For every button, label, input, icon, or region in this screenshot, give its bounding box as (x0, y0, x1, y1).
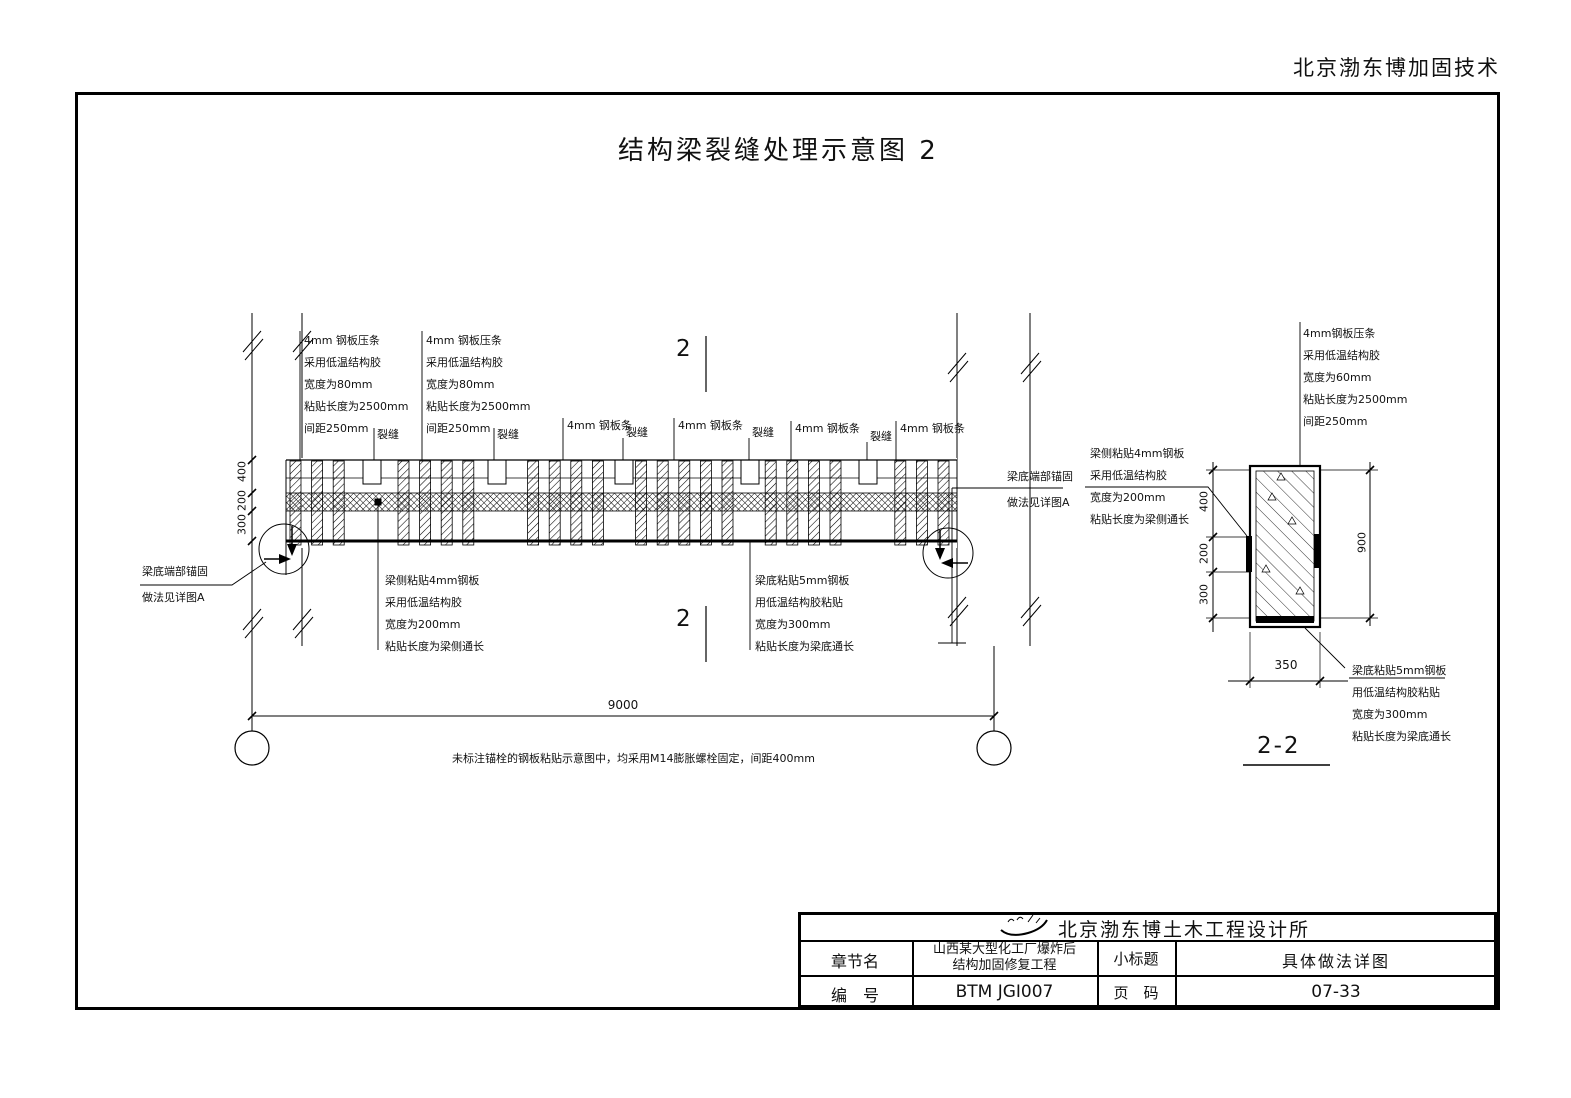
tb-number-value: BTM JGI007 (912, 982, 1097, 1002)
tb-subtitle-value: 具体做法详图 (1175, 948, 1497, 972)
design-office-name: 北京渤东博土木工程设计所 (1058, 915, 1310, 942)
tb-project-line2: 结构加固修复工程 (912, 958, 1097, 974)
section-title: 2-2 (1257, 733, 1301, 759)
ann-line: 宽度为200mm (1090, 487, 1189, 509)
ann-line: 4mm 钢板压条 (304, 330, 408, 352)
section-mark-top: 2 (676, 336, 691, 362)
anchor-arrowhead (279, 554, 291, 564)
ann-line: 采用低温结构胶 (426, 352, 530, 374)
ann-line: 粘贴长度为梁侧通长 (1090, 509, 1189, 531)
ann-line: 梁侧粘贴4mm钢板 (385, 570, 484, 592)
section-mark-bottom: 2 (676, 606, 691, 632)
ann-line: 粘贴长度为梁侧通长 (385, 636, 484, 658)
section-dim-200: 200 (1198, 532, 1211, 576)
ann-line: 宽度为300mm (755, 614, 854, 636)
section-dim-350: 350 (1263, 658, 1309, 672)
leader-dot (375, 499, 382, 506)
section-annotation-strip: 4mm钢板压条 采用低温结构胶 宽度为60mm 粘贴长度为2500mm 间距25… (1303, 323, 1407, 433)
section-annotation-bottom-plate: 梁底粘贴5mm钢板 用低温结构胶粘贴 宽度为300mm 粘贴长度为梁底通长 (1352, 660, 1451, 748)
section-side-plate-right (1314, 534, 1320, 568)
ann-line: 用低温结构胶粘贴 (755, 592, 854, 614)
ann-line: 采用低温结构胶 (1090, 465, 1189, 487)
ann-line: 间距250mm (1303, 411, 1407, 433)
annotation-strip-spec-2: 4mm 钢板压条 采用低温结构胶 宽度为80mm 粘贴长度为2500mm 间距2… (426, 330, 530, 440)
tb-subtitle-label: 小标题 (1097, 948, 1175, 969)
design-office-logo (998, 914, 1050, 938)
section-dim-900: 900 (1356, 521, 1369, 565)
anchor-note-right-2: 做法见详图A (1007, 494, 1070, 510)
annotation-bottom-plate: 梁底粘贴5mm钢板 用低温结构胶粘贴 宽度为300mm 粘贴长度为梁底通长 (755, 570, 854, 658)
tb-chapter-label: 章节名 (798, 948, 912, 972)
annotation-side-plate: 梁侧粘贴4mm钢板 采用低温结构胶 宽度为200mm 粘贴长度为梁侧通长 (385, 570, 484, 658)
tb-number-label: 编 号 (798, 982, 912, 1006)
drawing-sheet: 北京渤东博加固技术 结构梁裂缝处理示意图 2 (0, 0, 1571, 1098)
crack-label: 裂缝 (377, 426, 399, 442)
ann-line: 粘贴长度为梁底通长 (1352, 726, 1451, 748)
tb-project-line1: 山西某大型化工厂爆炸后 (912, 942, 1097, 958)
axis-bubble-right (977, 731, 1011, 765)
ann-line: 粘贴长度为梁底通长 (755, 636, 854, 658)
ann-line: 梁底粘贴5mm钢板 (1352, 660, 1451, 682)
section-dim-300: 300 (1198, 573, 1211, 617)
section-dim-400: 400 (1198, 480, 1211, 524)
section-bottom-plate (1256, 616, 1314, 623)
ann-line: 采用低温结构胶 (304, 352, 408, 374)
anchor-arrowhead (935, 548, 945, 560)
anchor-note-right-1: 梁底端部锚固 (1007, 468, 1073, 484)
dim-300: 300 (236, 503, 249, 547)
strip-label: 4mm 钢板条 (795, 420, 860, 436)
section-side-plate-left (1246, 536, 1252, 572)
crack-label: 裂缝 (497, 426, 519, 442)
ann-line: 采用低温结构胶 (1303, 345, 1407, 367)
dim-span-9000: 9000 (600, 698, 646, 712)
tb-project-name: 山西某大型化工厂爆炸后 结构加固修复工程 (912, 942, 1097, 974)
strip-label: 4mm 钢板条 (900, 420, 965, 436)
ann-line: 宽度为300mm (1352, 704, 1451, 726)
ann-line: 用低温结构胶粘贴 (1352, 682, 1451, 704)
ann-line: 宽度为80mm (304, 374, 408, 396)
crack-label: 裂缝 (870, 428, 892, 444)
ann-line: 梁底粘贴5mm钢板 (755, 570, 854, 592)
ann-line: 4mm 钢板压条 (426, 330, 530, 352)
ann-line: 粘贴长度为2500mm (1303, 389, 1407, 411)
anchor-note-left-1: 梁底端部锚固 (142, 563, 208, 579)
anchor-arrowhead (287, 544, 297, 556)
strip-label: 4mm 钢板条 (678, 417, 743, 433)
anchor-note-left-2: 做法见详图A (142, 589, 205, 605)
anchor-arrowhead (941, 558, 953, 568)
annotation-strip-spec-1: 4mm 钢板压条 采用低温结构胶 宽度为80mm 粘贴长度为2500mm 间距2… (304, 330, 408, 440)
section-annotation-side-plate: 梁侧粘贴4mm钢板 采用低温结构胶 宽度为200mm 粘贴长度为梁侧通长 (1090, 443, 1189, 531)
axis-bubble-left (235, 731, 269, 765)
crack-label: 裂缝 (752, 424, 774, 440)
ann-line: 宽度为200mm (385, 614, 484, 636)
strip-label: 4mm 钢板条 (567, 417, 632, 433)
ann-line: 采用低温结构胶 (385, 592, 484, 614)
ann-line: 宽度为80mm (426, 374, 530, 396)
ann-line: 粘贴长度为2500mm (304, 396, 408, 418)
ann-line: 宽度为60mm (1303, 367, 1407, 389)
section-concrete (1256, 471, 1314, 621)
side-plate-band-cross (286, 493, 957, 511)
tb-page-label: 页 码 (1097, 982, 1175, 1003)
ann-line: 4mm钢板压条 (1303, 323, 1407, 345)
ann-line: 梁侧粘贴4mm钢板 (1090, 443, 1189, 465)
title-block-line (798, 975, 1497, 977)
general-note: 未标注锚栓的钢板粘贴示意图中，均采用M14膨胀螺栓固定，间距400mm (452, 750, 815, 766)
ann-line: 粘贴长度为2500mm (426, 396, 530, 418)
axis-lines (252, 646, 994, 731)
tb-page-value: 07-33 (1175, 982, 1497, 1002)
